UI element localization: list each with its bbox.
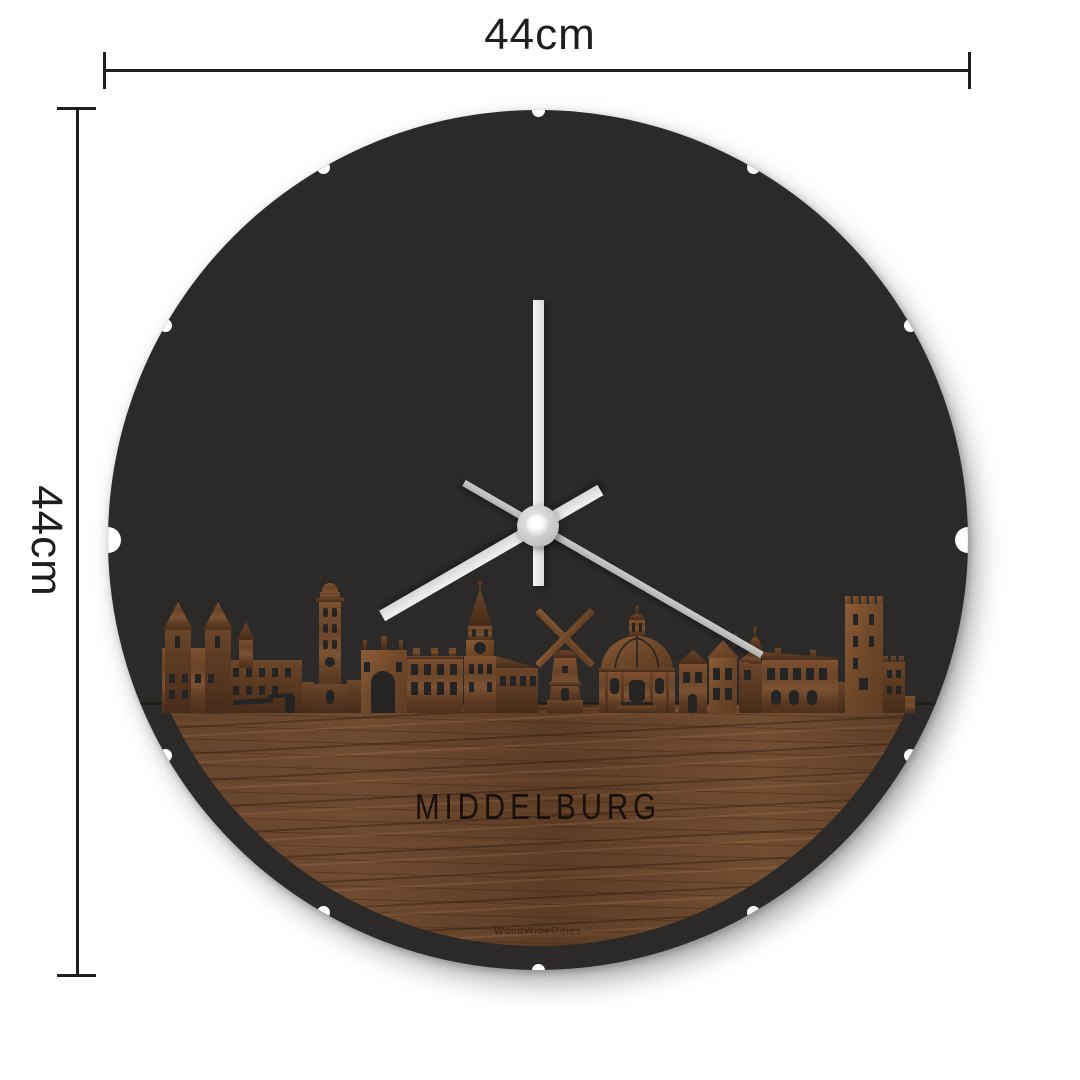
width-dimension-label: 44cm xyxy=(0,10,1080,60)
height-dimension-cap-top xyxy=(57,107,96,110)
height-dimension-label: 44cm xyxy=(21,485,71,597)
building-town-hall-tower xyxy=(464,581,496,713)
rim-notch xyxy=(108,527,121,553)
hand-hub-cap xyxy=(526,514,550,538)
rim-notch xyxy=(955,527,968,553)
skyline-middelburg xyxy=(155,578,915,713)
height-dimension-line xyxy=(76,108,79,977)
rim-notch xyxy=(532,110,545,117)
building-lange-jan-tower xyxy=(313,583,347,713)
rim-notch xyxy=(159,749,172,762)
width-dimension-cap-left xyxy=(103,52,106,89)
rim-notch xyxy=(904,319,917,332)
height-dimension-cap-bottom xyxy=(57,974,96,977)
clock-face: MIDDELBURG WoodWideCities xyxy=(108,110,968,970)
rim-notch xyxy=(317,161,330,174)
rim-notch xyxy=(159,319,172,332)
building-battlement-tower xyxy=(838,596,915,713)
wall-segment xyxy=(347,680,361,713)
width-dimension-cap-right xyxy=(968,52,971,89)
building-town-hall-wing xyxy=(496,656,538,713)
city-name-engraving: MIDDELBURG xyxy=(185,786,890,828)
building-gateway xyxy=(361,636,407,713)
rim-notch xyxy=(532,964,545,971)
building-oostkerk-dome xyxy=(599,606,675,713)
buildings-houses-right xyxy=(762,648,838,713)
rim-notch xyxy=(317,906,330,919)
width-dimension-line xyxy=(104,69,970,72)
building-row-windows xyxy=(407,648,463,713)
rim-notch xyxy=(904,749,917,762)
rim-notch xyxy=(747,906,760,919)
rim-notch xyxy=(747,161,760,174)
building-windmill xyxy=(535,608,595,713)
product-dimension-mockup: 44cm 44cm xyxy=(0,0,1080,1080)
brand-watermark: WoodWideCities xyxy=(108,926,968,937)
wall-segment xyxy=(302,682,314,713)
